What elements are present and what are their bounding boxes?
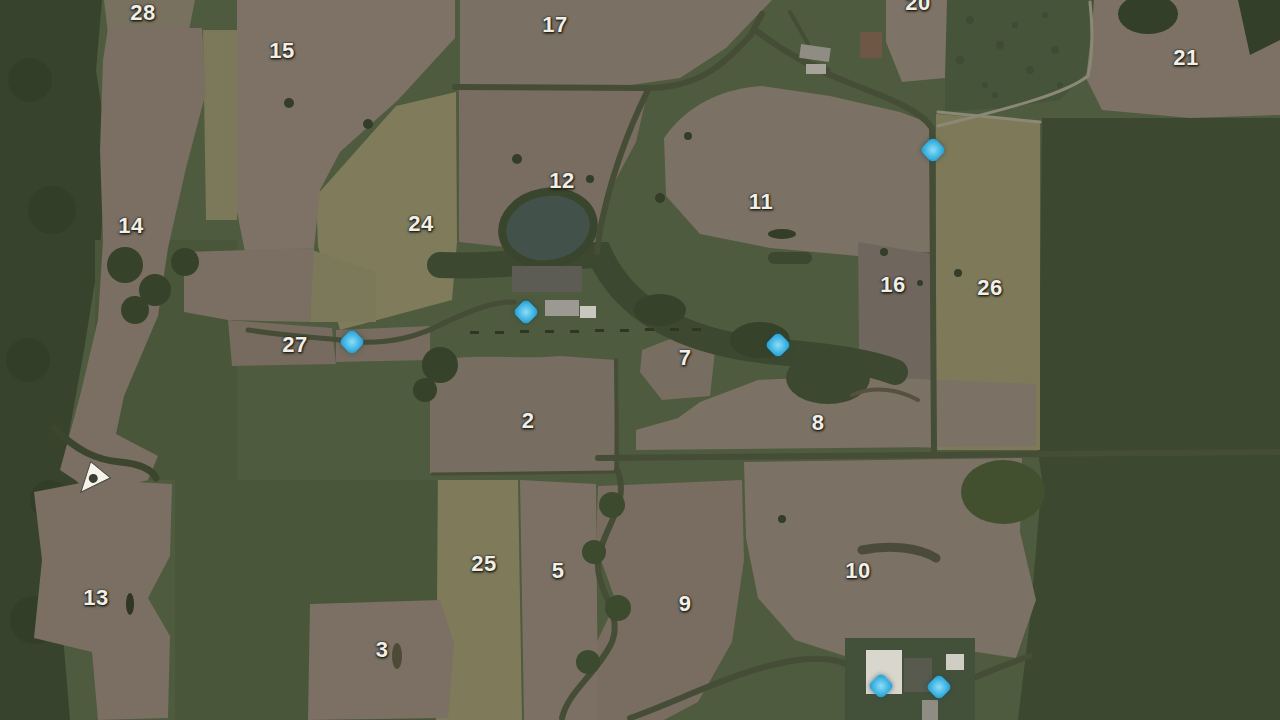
player-position-icon: [73, 455, 118, 498]
map-canvas: [0, 0, 1280, 720]
south-farm: [845, 638, 975, 720]
map-viewport: 281517202114241211162627728132559103: [0, 0, 1280, 720]
